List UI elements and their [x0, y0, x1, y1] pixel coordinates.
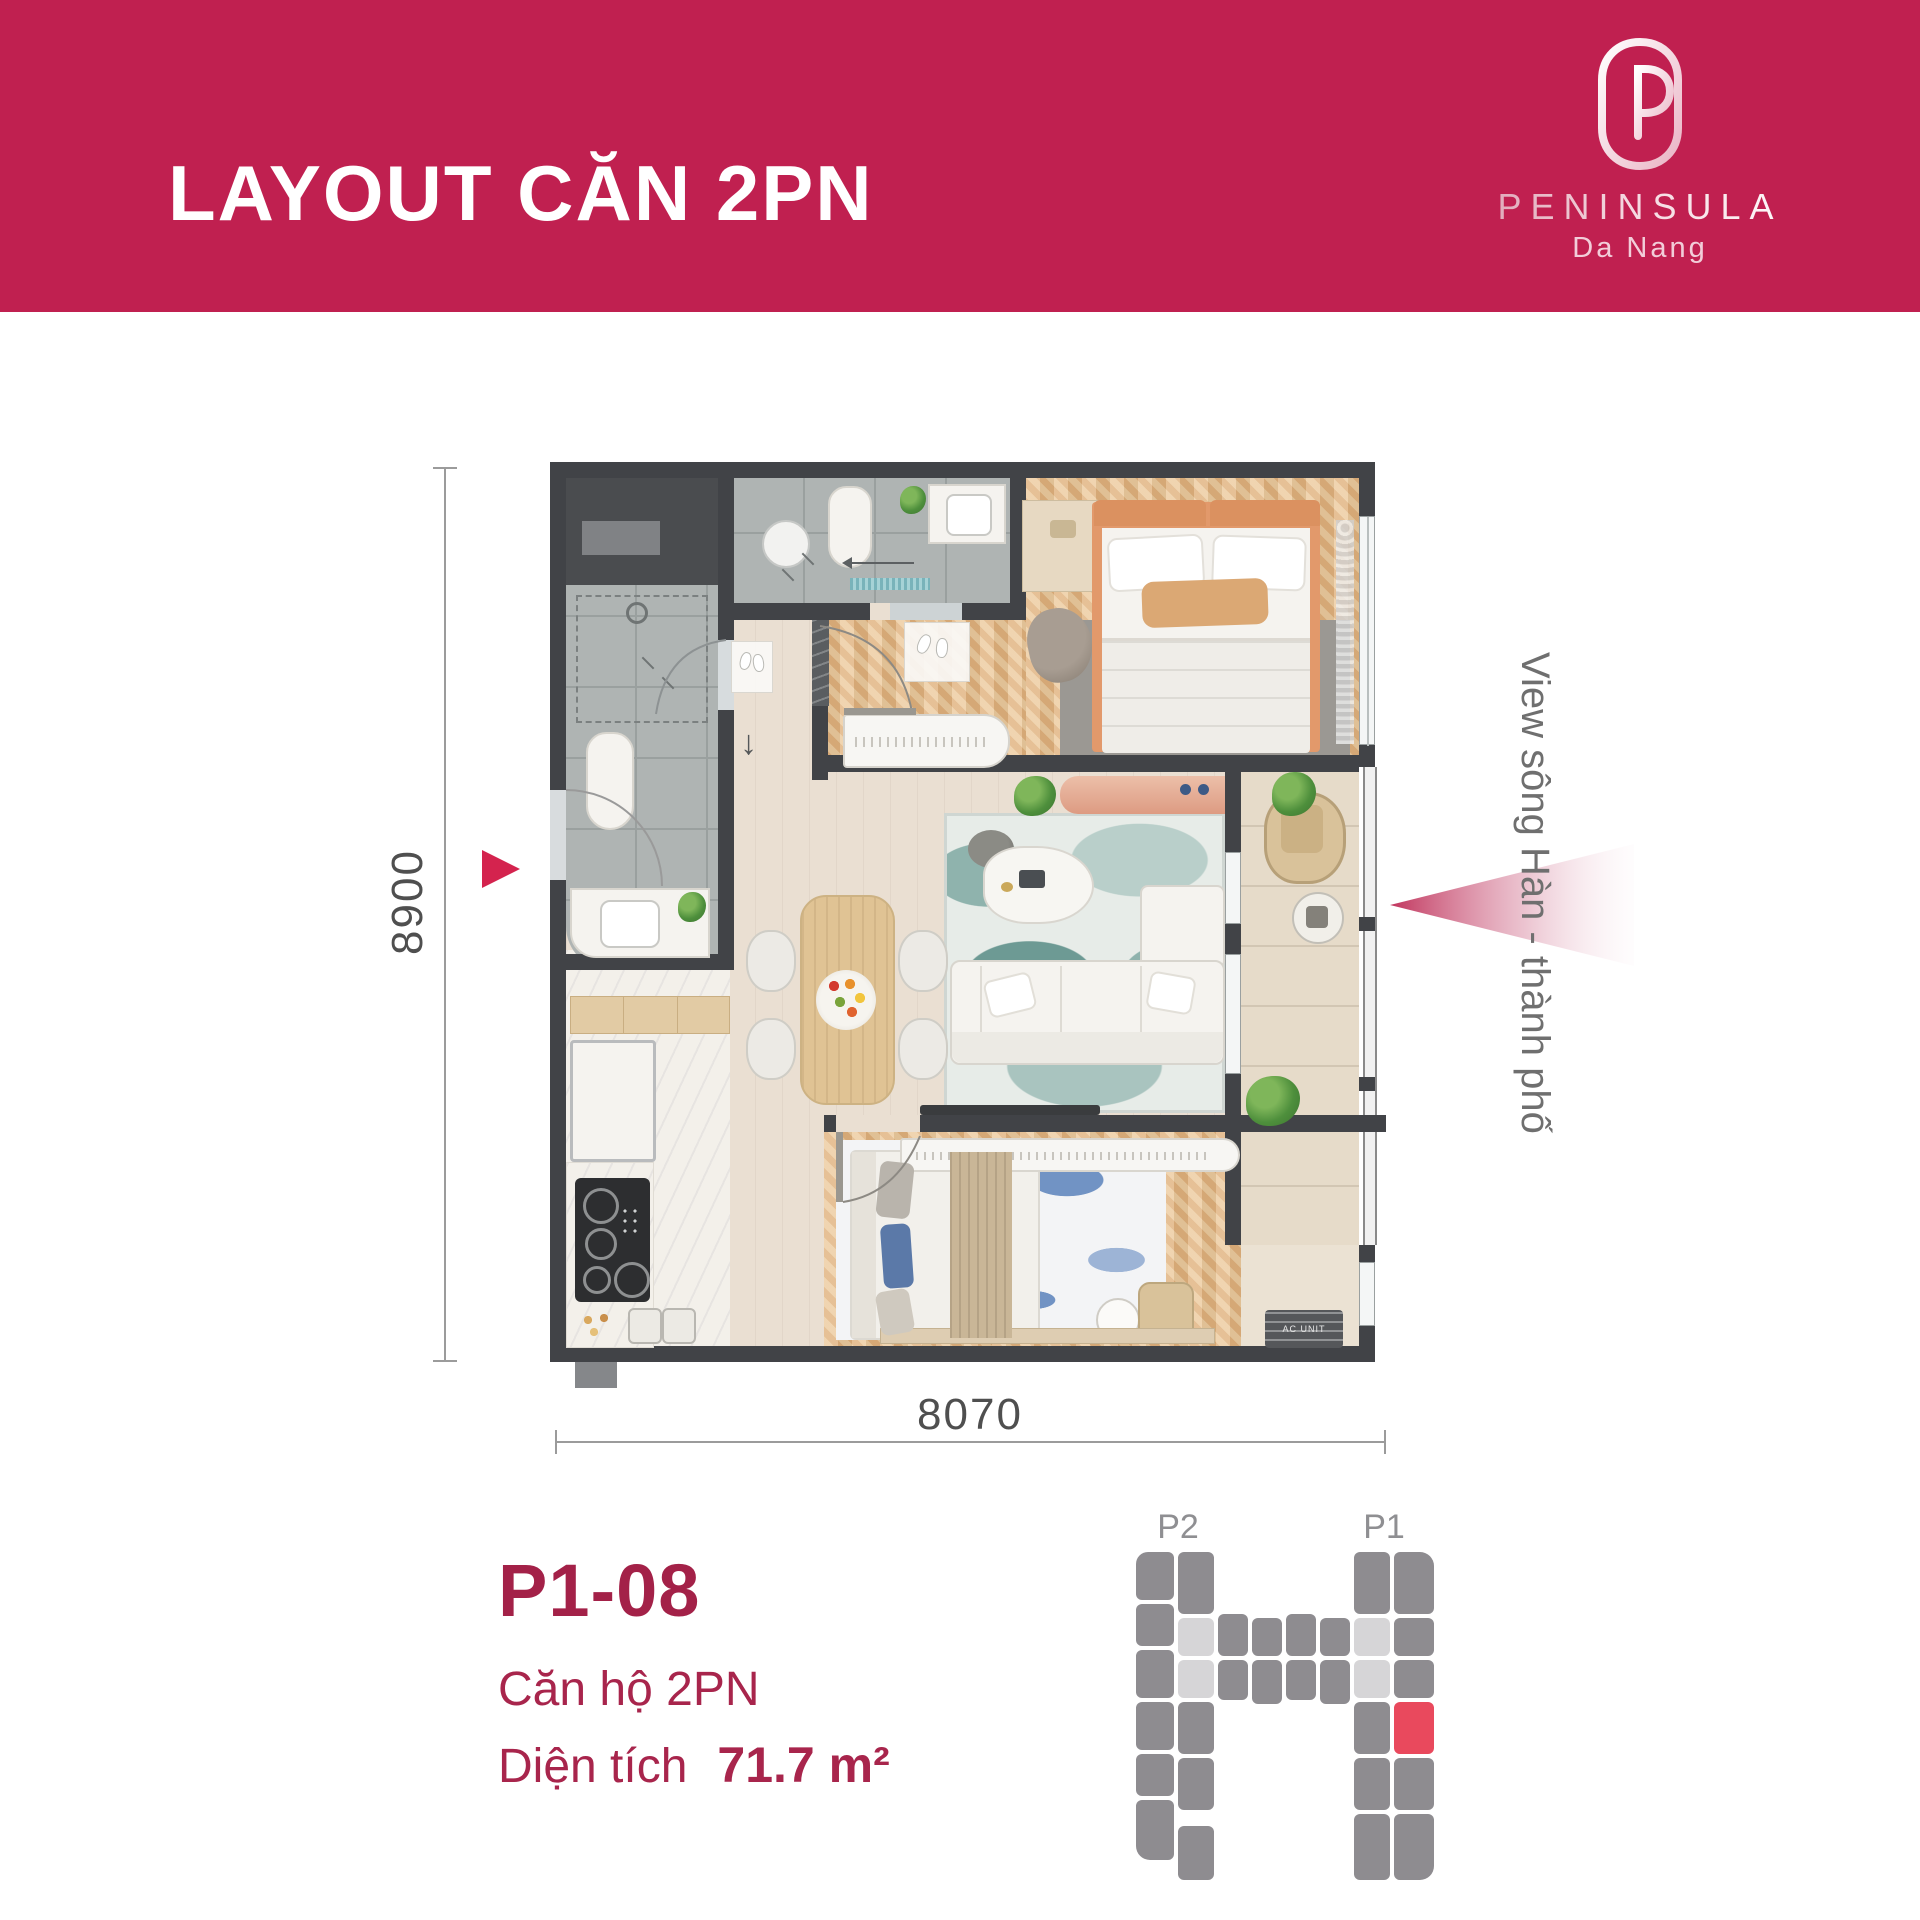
cooktop-knobs	[620, 1206, 642, 1236]
kitchen-jars	[578, 1310, 618, 1340]
towel-rail	[850, 578, 930, 590]
keyplan-block	[1178, 1660, 1214, 1698]
dimension-width-label: 8070	[870, 1390, 1070, 1440]
dining-chair	[746, 1018, 796, 1080]
burner	[614, 1262, 650, 1298]
unit-code: P1-08	[498, 1548, 700, 1633]
balcony-glass-door	[1225, 954, 1241, 1074]
kitchen-sink-a	[628, 1308, 662, 1344]
brand-subtitle: Da Nang	[1460, 232, 1820, 265]
rail-joint	[1359, 1077, 1375, 1091]
poster: LAYOUT CĂN 2PN PENINSULA Da Nang 8900 80…	[0, 0, 1920, 1920]
dim-cap	[433, 1360, 457, 1362]
dim-cap	[433, 467, 457, 469]
dimension-height-label: 8900	[383, 802, 433, 1002]
sofa-backrest	[952, 1032, 1223, 1063]
keyplan-block	[1354, 1702, 1390, 1754]
sofa-pillow	[982, 971, 1038, 1019]
toilet-2	[828, 486, 872, 568]
keyplan-label-p2: P2	[1146, 1508, 1210, 1547]
wall-bottom	[550, 1346, 1375, 1362]
bath2-arrow-head	[842, 557, 852, 569]
bath2-arrow-line	[850, 562, 914, 564]
keyplan-block	[1394, 1758, 1434, 1810]
entry-arrow-icon	[482, 850, 520, 888]
keyplan-block	[1136, 1650, 1174, 1698]
unit-area-value: 71.7 m²	[717, 1736, 889, 1794]
dim-cap	[555, 1430, 557, 1454]
sofa-seam	[1060, 966, 1062, 1032]
entry-console	[570, 996, 730, 1034]
balcony-table	[1292, 892, 1344, 944]
header-banner: LAYOUT CĂN 2PN PENINSULA Da Nang	[0, 0, 1920, 312]
keyplan-block	[1286, 1614, 1316, 1656]
desk-deco	[1050, 520, 1076, 538]
dimension-line-vertical	[444, 468, 446, 1362]
bedroom1-door-arc	[812, 620, 922, 720]
keyplan-block	[1218, 1614, 1248, 1656]
bedroom2-door-arc	[836, 1132, 936, 1222]
curtain-1	[1336, 520, 1354, 744]
keyplan-block	[1136, 1604, 1174, 1646]
wall-balcony-1	[1225, 772, 1241, 852]
keyplan-block	[1354, 1552, 1390, 1614]
keyplan-block	[1320, 1618, 1350, 1656]
tv-console-living	[1060, 776, 1225, 814]
keyplan-block	[1354, 1660, 1390, 1698]
keyplan-block	[1178, 1702, 1214, 1754]
duvet-1	[1102, 638, 1310, 753]
bath1-door-arc	[646, 632, 736, 722]
burner	[585, 1228, 617, 1260]
sofa-seam	[1140, 966, 1142, 1032]
keyplan-block	[1394, 1660, 1434, 1698]
keyplan-block	[1286, 1660, 1316, 1700]
burner	[583, 1266, 611, 1294]
sofa-pillow	[1145, 970, 1197, 1015]
sofa-chaise	[1140, 885, 1225, 969]
keyplan-block	[1394, 1814, 1434, 1880]
wall-left-lower	[550, 880, 566, 1362]
rail-joint	[1359, 917, 1375, 931]
wall-left-upper	[550, 462, 566, 790]
wall-stub-bottom	[575, 1360, 617, 1388]
keyplan-label-p1: P1	[1352, 1508, 1416, 1547]
window-bedroom-2	[1359, 1262, 1375, 1326]
dining-chair	[746, 930, 796, 992]
speaker-knob	[1180, 784, 1191, 795]
keyplan-block	[1354, 1618, 1390, 1656]
keyplan-block	[1136, 1800, 1174, 1860]
table-deco	[1001, 882, 1013, 892]
dining-chair	[898, 930, 948, 992]
wall-right-mid	[1359, 745, 1375, 767]
keyplan-block	[1136, 1552, 1174, 1600]
entry-direction-symbol: ↓	[740, 724, 774, 754]
coffee-table	[983, 846, 1094, 924]
peninsula-monogram-icon	[1594, 36, 1686, 172]
blanket-2	[950, 1152, 1012, 1338]
balcony-table-tray	[1306, 906, 1328, 928]
page-title: LAYOUT CĂN 2PN	[168, 148, 874, 239]
shaft-box	[582, 521, 660, 555]
fridge	[570, 1040, 656, 1162]
keyplan-block	[1178, 1552, 1214, 1614]
wall-balcony-2	[1225, 924, 1241, 954]
hanger-rail	[855, 737, 985, 747]
keyplan-block	[1320, 1660, 1350, 1704]
unit-area-label: Diện tích	[498, 1739, 687, 1794]
headboard-left	[1094, 500, 1206, 526]
wall-bath2-bottom-right	[962, 603, 1010, 620]
keyplan-block	[1136, 1754, 1174, 1796]
keyplan-block	[1252, 1660, 1282, 1704]
sink-pedestal-2	[762, 520, 810, 568]
wall-top	[550, 462, 1375, 478]
keyplan-block	[1394, 1552, 1434, 1614]
basin-1	[600, 900, 660, 948]
floorplan: ↓	[550, 462, 1375, 1362]
wall-right-top	[1359, 462, 1375, 516]
fruit-bowl	[816, 970, 876, 1030]
wall-bath2-bottom-left	[734, 603, 870, 620]
keyplan-block	[1178, 1826, 1214, 1880]
accent-pillow	[1141, 578, 1269, 628]
basin-2	[946, 494, 992, 536]
keyplan-block	[1252, 1618, 1282, 1656]
burner	[583, 1188, 619, 1224]
speaker-knob	[1198, 784, 1209, 795]
keyplan-block	[1394, 1618, 1434, 1656]
keyplan-unit-highlight	[1394, 1702, 1434, 1754]
table-tray	[1019, 870, 1045, 888]
pillow-blue	[880, 1223, 914, 1289]
low-cabinet-2	[880, 1328, 1215, 1344]
sofa-seam	[980, 966, 982, 1032]
balcony-rail	[1363, 767, 1377, 1245]
dim-cap	[1384, 1430, 1386, 1454]
bath2-door-sill	[890, 603, 962, 620]
sofa-main	[950, 960, 1225, 1065]
unit-type: Căn hộ 2PN	[498, 1662, 760, 1717]
mat-bath1	[731, 641, 773, 693]
brand-name: PENINSULA	[1460, 186, 1820, 228]
keyplan-block	[1178, 1758, 1214, 1810]
keyplan-block	[1354, 1814, 1390, 1880]
window-mullion	[1367, 517, 1369, 746]
keyplan-block	[1178, 1618, 1214, 1656]
entry-door-arc	[550, 780, 670, 900]
dimension-line-horizontal	[556, 1441, 1386, 1443]
dining-chair	[898, 1018, 948, 1080]
keyplan-blocks	[1128, 1552, 1438, 1888]
shower-drain-icon	[626, 602, 648, 624]
kitchen-sink-b	[662, 1308, 696, 1344]
ac-unit: AC UNIT	[1265, 1310, 1343, 1348]
wall-bath1-right-upper	[718, 478, 734, 640]
balcony-glass-1	[1225, 852, 1241, 924]
keyplan: P2 P1	[1128, 1500, 1438, 1890]
headboard-right	[1210, 500, 1320, 526]
keyplan-block	[1218, 1660, 1248, 1700]
keyplan-block	[1354, 1758, 1390, 1810]
wall-bath1-right-lower	[718, 710, 734, 970]
window-bedroom-1	[1359, 516, 1375, 745]
unit-area: Diện tích 71.7 m²	[498, 1736, 890, 1794]
brand-logo: PENINSULA Da Nang	[1460, 36, 1820, 276]
wardrobe	[843, 714, 1010, 768]
view-label: View sông Hàn - thành phố	[1512, 652, 1557, 1212]
keyplan-block	[1136, 1702, 1174, 1750]
bed2-door-gap	[836, 1115, 920, 1132]
pillow-tan	[874, 1287, 915, 1336]
tv-bedroom-2	[920, 1105, 1100, 1115]
